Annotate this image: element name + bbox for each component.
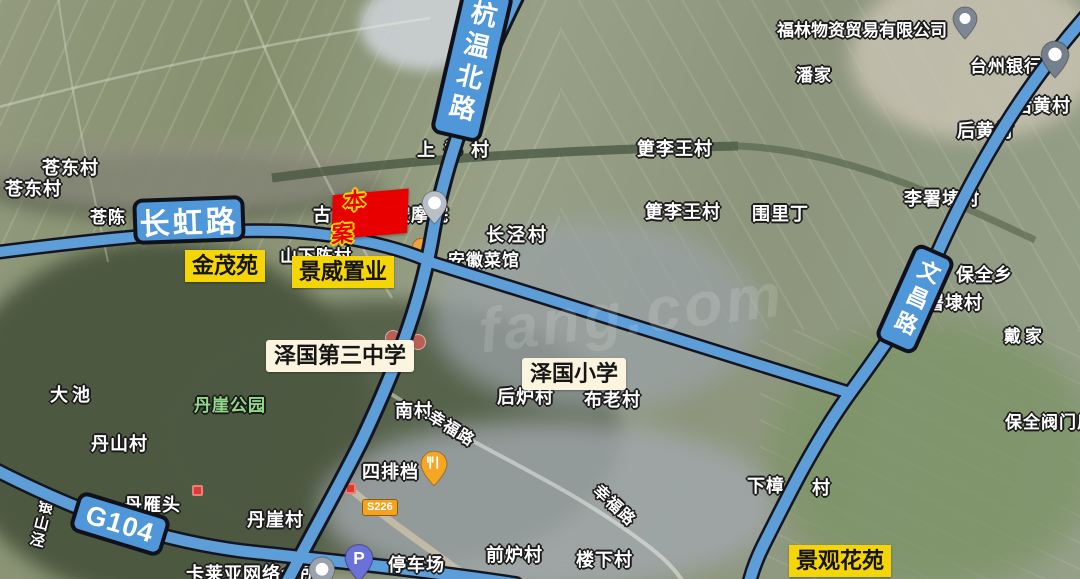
massage-pin-icon[interactable] <box>421 190 448 230</box>
site-marker-label: 本案 <box>331 178 409 249</box>
poi-label: 停车场 <box>388 551 445 577</box>
road-shield-label: S226 <box>367 501 393 513</box>
parking-pin-icon[interactable]: P <box>344 543 374 579</box>
school-label-text: 泽国小学 <box>530 361 618 386</box>
community-label-jingguan: 景观花苑 <box>789 545 891 577</box>
road-sign-changhong: 长虹路 <box>132 195 246 245</box>
company-pin-icon[interactable] <box>952 6 978 45</box>
school-label-primary: 泽国小学 <box>522 358 626 390</box>
school-label-middle: 泽国第三中学 <box>266 340 414 372</box>
school-label-text: 泽国第三中学 <box>274 343 406 368</box>
bank-pin-icon[interactable] <box>1040 40 1070 84</box>
netclub-pin-icon[interactable] <box>308 556 336 579</box>
site-marker: 本案 <box>331 189 408 240</box>
restaurant-pin-icon[interactable] <box>420 450 448 492</box>
community-label-text: 金茂苑 <box>192 253 258 278</box>
community-label-text: 景威置业 <box>299 259 387 284</box>
road-sign-label: 长虹路 <box>139 196 239 243</box>
community-label-jingwei: 景威置业 <box>292 256 394 288</box>
satellite-map[interactable]: 苍东村 苍东村 苍陈 上郑村 古 按摩院 山下陈村 长泾村 安徽菜馆 筻李王村 … <box>0 0 1080 579</box>
community-label-text: 景观花苑 <box>796 548 884 573</box>
parking-glyph: P <box>353 548 365 568</box>
road-shield-s226: S226 <box>362 499 398 516</box>
community-label-jinmao: 金茂苑 <box>185 250 265 282</box>
